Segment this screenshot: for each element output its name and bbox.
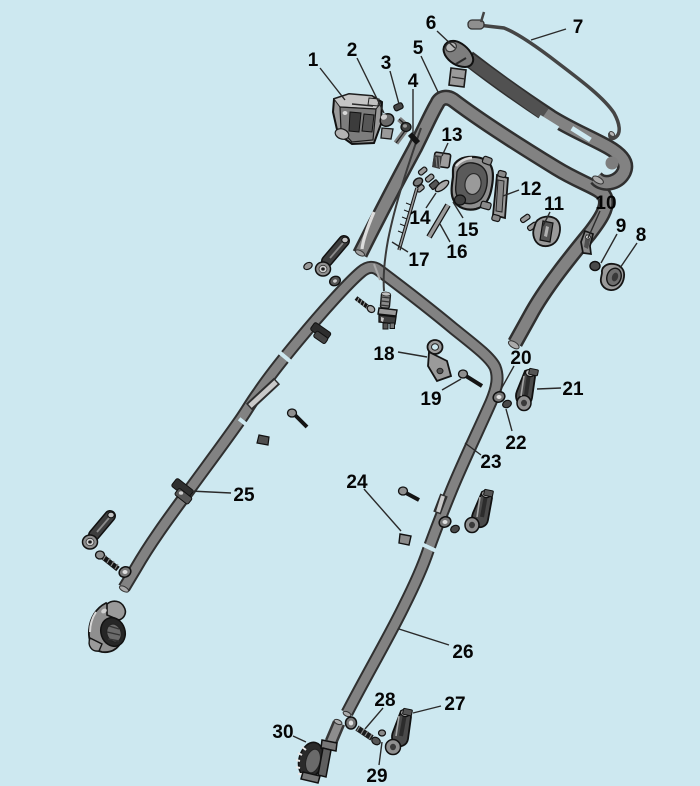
svg-text:17: 17	[408, 250, 429, 271]
svg-text:9: 9	[616, 216, 627, 237]
svg-text:29: 29	[366, 766, 387, 786]
svg-text:13: 13	[441, 125, 462, 146]
svg-text:19: 19	[420, 389, 441, 410]
svg-text:11: 11	[544, 194, 565, 215]
svg-text:27: 27	[444, 694, 465, 715]
svg-text:26: 26	[452, 642, 473, 663]
svg-text:23: 23	[480, 452, 501, 473]
svg-text:22: 22	[505, 433, 526, 454]
svg-text:4: 4	[408, 71, 419, 92]
svg-text:25: 25	[233, 485, 255, 506]
svg-text:18: 18	[373, 344, 394, 365]
svg-text:6: 6	[426, 13, 437, 34]
svg-text:14: 14	[409, 208, 431, 229]
svg-text:16: 16	[446, 242, 467, 263]
svg-text:7: 7	[573, 17, 584, 38]
svg-text:24: 24	[346, 472, 368, 493]
svg-text:21: 21	[562, 379, 584, 400]
svg-text:30: 30	[272, 722, 293, 743]
svg-text:2: 2	[347, 40, 358, 61]
svg-text:5: 5	[413, 38, 424, 59]
svg-text:3: 3	[381, 53, 392, 74]
svg-text:20: 20	[510, 348, 531, 369]
svg-text:15: 15	[457, 220, 479, 241]
svg-text:28: 28	[374, 690, 395, 711]
svg-text:8: 8	[636, 225, 647, 246]
svg-text:12: 12	[520, 179, 541, 200]
svg-text:1: 1	[308, 50, 319, 71]
svg-text:10: 10	[595, 193, 616, 214]
